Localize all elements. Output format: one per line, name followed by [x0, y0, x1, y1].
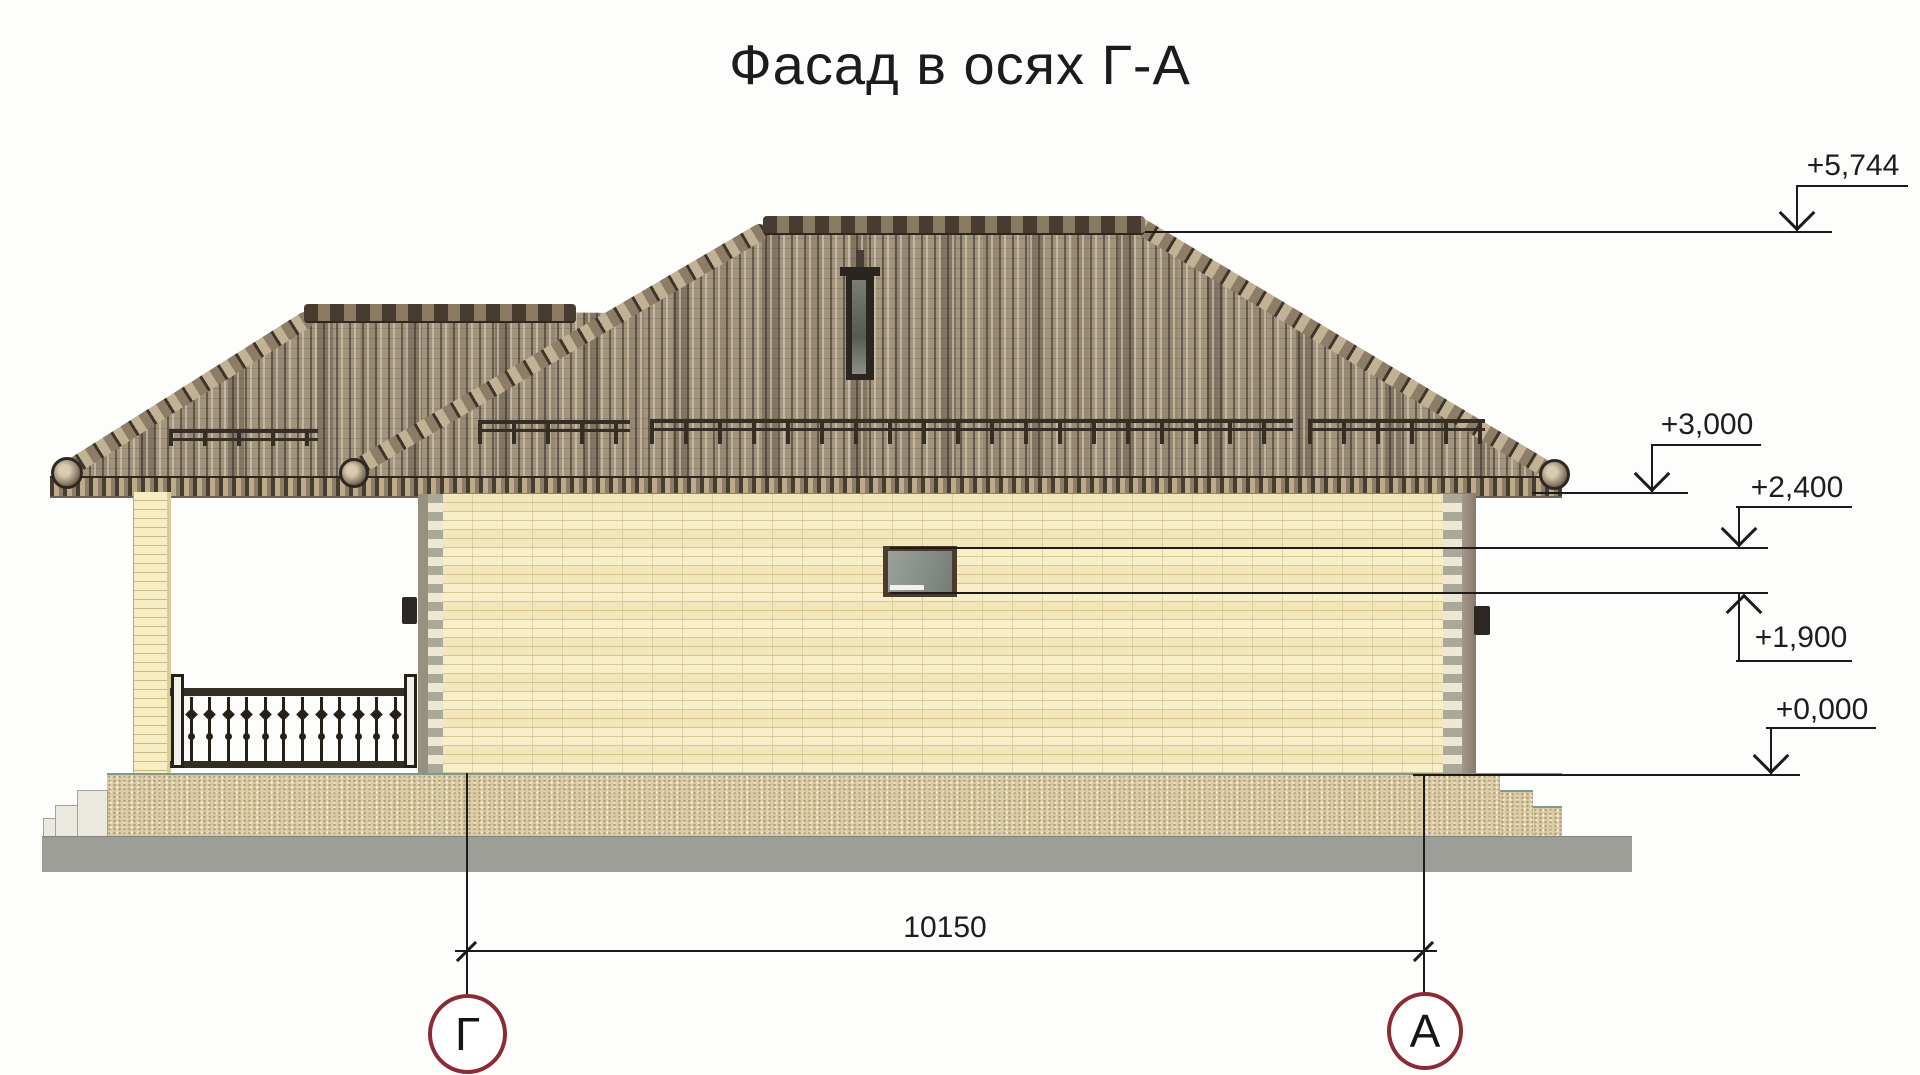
roof-vent-stub	[856, 250, 864, 268]
axis-letter-right: А	[1410, 1004, 1441, 1058]
left-step-1	[77, 790, 108, 836]
window-sill	[890, 585, 924, 590]
left-step-3	[43, 818, 56, 836]
axis-line-left	[466, 773, 468, 994]
baluster	[227, 697, 230, 761]
level-line-eaves	[1532, 492, 1688, 494]
level-line-ground	[1413, 774, 1800, 776]
porch-ridge-cap	[304, 304, 576, 323]
railing-post-right	[404, 674, 417, 768]
elevation-label-window-top: +2,400	[1742, 471, 1852, 505]
gutter-end-porch	[51, 457, 83, 489]
left-step-2	[55, 805, 78, 836]
dimension-value: 10150	[845, 911, 1045, 945]
basement-window	[883, 546, 957, 597]
left-corner-quoin	[428, 494, 443, 775]
wall-lamp-left	[402, 597, 417, 624]
main-ridge-cap	[763, 216, 1145, 235]
baluster	[245, 697, 248, 761]
baluster	[208, 697, 211, 761]
main-wall	[443, 494, 1443, 775]
facade-drawing-canvas: Фасад в осях Г-А	[0, 0, 1920, 1075]
dimension-line	[455, 950, 1437, 952]
flag-shelf-window-top	[1736, 506, 1852, 508]
baluster	[394, 697, 397, 761]
left-corner-pilaster	[418, 494, 428, 775]
flag-shelf-ground	[1766, 727, 1876, 729]
snow-guard-right	[1308, 419, 1485, 444]
axis-bubble-right: А	[1387, 992, 1463, 1070]
baluster	[264, 697, 267, 761]
roof-vent	[846, 274, 874, 380]
baluster	[320, 697, 323, 761]
elevation-label-window-sill: +1,900	[1748, 621, 1854, 655]
porch-column	[133, 492, 171, 775]
flag-shelf-eaves	[1651, 444, 1761, 446]
elevation-arrow-eaves	[1634, 456, 1671, 493]
gutter-end-main-left	[339, 458, 369, 488]
axis-line-right	[1423, 776, 1425, 992]
level-line-ridge	[1145, 231, 1832, 233]
flag-shelf-window-sill	[1736, 660, 1852, 662]
elevation-arrow-ground	[1753, 738, 1790, 775]
right-step-1	[1500, 790, 1533, 838]
elevation-label-ground: +0,000	[1768, 693, 1876, 727]
baluster	[282, 697, 285, 761]
baluster	[338, 697, 341, 761]
base-slab	[42, 836, 1632, 872]
elevation-arrow-ridge	[1779, 195, 1816, 232]
railing-bottom-rail	[170, 761, 417, 768]
baluster	[375, 697, 378, 761]
baluster	[357, 697, 360, 761]
axis-bubble-left: Г	[428, 994, 507, 1074]
snow-guard-porch	[169, 429, 318, 446]
flag-shelf-ridge	[1796, 185, 1908, 187]
right-step-2	[1533, 806, 1562, 838]
axis-letter-left: Г	[455, 1007, 480, 1061]
snow-guard-center	[650, 419, 1293, 444]
roof-vent-glass	[852, 280, 866, 374]
snow-guard-left	[478, 420, 630, 444]
railing-top-rail	[170, 688, 417, 696]
elevation-label-ridge: +5,744	[1798, 149, 1908, 183]
baluster	[301, 697, 304, 761]
wall-lamp-right	[1474, 606, 1490, 635]
leader-line-window-sill	[890, 592, 1768, 594]
right-corner-quoin	[1443, 494, 1462, 776]
leader-line-window-top	[890, 547, 1768, 549]
foundation-plinth	[107, 775, 1500, 836]
elevation-arrow-window-top	[1721, 511, 1758, 548]
right-corner-pilaster	[1462, 494, 1476, 776]
baluster	[190, 697, 193, 761]
gutter-end-main-right	[1539, 459, 1570, 490]
elevation-label-eaves: +3,000	[1653, 408, 1761, 442]
railing-post-left	[171, 674, 184, 768]
drawing-title: Фасад в осях Г-А	[610, 32, 1310, 97]
